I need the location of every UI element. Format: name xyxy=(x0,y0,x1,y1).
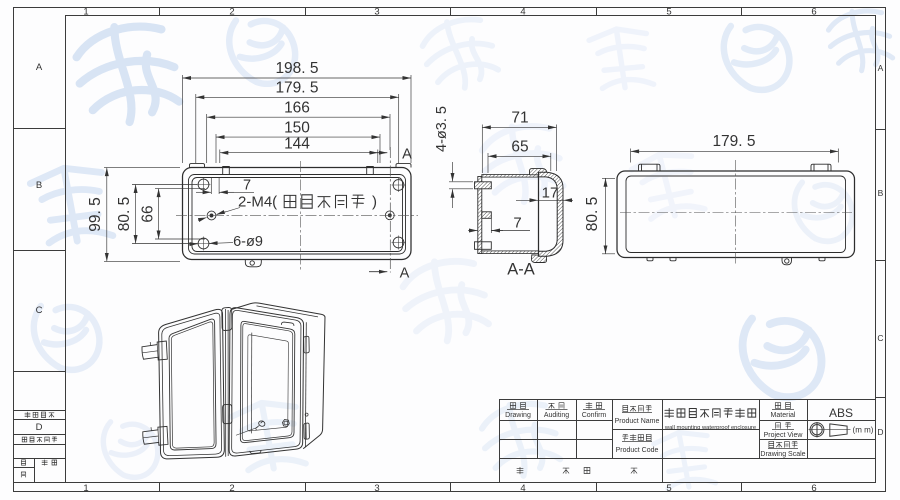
svg-text:ABS: ABS xyxy=(829,406,853,420)
svg-text:2: 2 xyxy=(229,483,234,494)
svg-text:80. 5: 80. 5 xyxy=(116,197,133,231)
svg-text:Material: Material xyxy=(771,412,796,419)
svg-text:Product Name: Product Name xyxy=(615,418,660,425)
svg-text:4: 4 xyxy=(520,7,525,18)
svg-text:99. 5: 99. 5 xyxy=(87,197,104,231)
svg-text:65: 65 xyxy=(511,139,528,156)
svg-text:C: C xyxy=(877,333,883,343)
svg-text:5: 5 xyxy=(666,483,671,494)
svg-text:1: 1 xyxy=(83,483,88,494)
svg-text:2: 2 xyxy=(229,7,234,18)
svg-text:198. 5: 198. 5 xyxy=(275,60,318,77)
svg-text:166: 166 xyxy=(284,100,310,117)
svg-text:144: 144 xyxy=(284,136,310,153)
svg-text:Drawing Scale: Drawing Scale xyxy=(760,451,805,458)
svg-text:7: 7 xyxy=(513,215,521,232)
svg-text:): ) xyxy=(372,194,377,211)
svg-text:66: 66 xyxy=(140,205,157,222)
svg-text:71: 71 xyxy=(511,110,528,127)
svg-text:Project View: Project View xyxy=(764,432,804,439)
svg-text:7: 7 xyxy=(243,178,251,194)
svg-text:Product Code: Product Code xyxy=(616,447,659,454)
svg-text:Drawing: Drawing xyxy=(505,412,531,419)
svg-text:A: A xyxy=(36,62,43,73)
svg-text:Confirm: Confirm xyxy=(582,412,607,419)
svg-text:150: 150 xyxy=(284,120,310,137)
svg-text:A: A xyxy=(402,147,412,163)
svg-text:4-ø3. 5: 4-ø3. 5 xyxy=(434,106,450,152)
svg-text:B: B xyxy=(878,188,884,198)
svg-text:B: B xyxy=(36,180,42,191)
svg-text:3: 3 xyxy=(374,483,379,494)
svg-text:6-ø9: 6-ø9 xyxy=(233,234,263,250)
svg-text:6: 6 xyxy=(811,483,816,494)
svg-text:17: 17 xyxy=(542,185,559,202)
svg-text:1: 1 xyxy=(83,7,88,18)
svg-text:80. 5: 80. 5 xyxy=(584,197,601,231)
svg-text:5: 5 xyxy=(666,7,671,18)
svg-text:wall mounting waterproof enclo: wall mounting waterproof enclosure xyxy=(664,425,756,431)
svg-text:179. 5: 179. 5 xyxy=(712,133,755,150)
svg-text:Auditing: Auditing xyxy=(544,412,569,419)
svg-text:C: C xyxy=(36,305,43,316)
svg-text:D: D xyxy=(36,422,43,433)
svg-text:(m m): (m m) xyxy=(853,426,874,435)
svg-text:A: A xyxy=(878,63,884,73)
svg-text:6: 6 xyxy=(811,7,816,18)
svg-text:4: 4 xyxy=(520,483,525,494)
svg-text:D: D xyxy=(877,427,883,437)
svg-text:3: 3 xyxy=(374,7,379,18)
svg-text:2-M4(: 2-M4( xyxy=(238,194,277,211)
svg-text:A-A: A-A xyxy=(507,261,535,279)
svg-text:179. 5: 179. 5 xyxy=(275,80,318,97)
svg-text:A: A xyxy=(400,266,410,282)
